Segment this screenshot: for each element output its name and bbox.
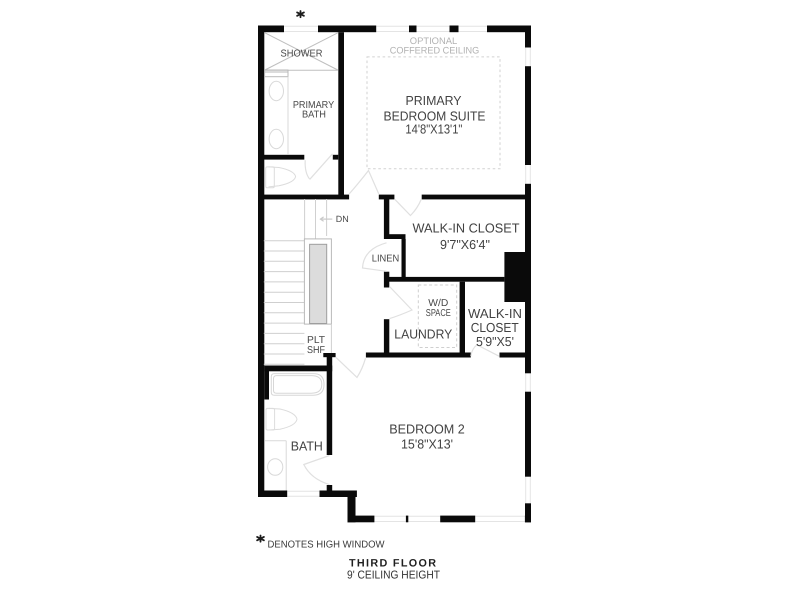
svg-text:9' CEILING HEIGHT: 9' CEILING HEIGHT — [347, 570, 440, 582]
svg-text:SPACE: SPACE — [426, 308, 451, 319]
svg-text:9'7"X6'4": 9'7"X6'4" — [440, 237, 490, 252]
svg-text:5'9"X5': 5'9"X5' — [476, 334, 514, 349]
svg-text:PRIMARY: PRIMARY — [406, 93, 462, 108]
svg-text:WALK-IN CLOSET: WALK-IN CLOSET — [413, 221, 520, 236]
svg-text:DENOTES HIGH WINDOW: DENOTES HIGH WINDOW — [268, 539, 386, 550]
svg-text:WALK-IN: WALK-IN — [468, 306, 522, 321]
svg-text:SHOWER: SHOWER — [281, 49, 323, 60]
svg-text:BATH: BATH — [302, 110, 326, 121]
svg-text:BATH: BATH — [291, 439, 323, 454]
svg-text:LAUNDRY: LAUNDRY — [394, 327, 452, 342]
svg-text:14'8"X13'1": 14'8"X13'1" — [405, 121, 462, 136]
svg-text:COFFERED CEILING: COFFERED CEILING — [390, 46, 480, 57]
svg-text:DN: DN — [336, 214, 349, 224]
svg-text:LINEN: LINEN — [372, 254, 400, 265]
svg-text:CLOSET: CLOSET — [471, 320, 519, 335]
svg-text:BEDROOM 2: BEDROOM 2 — [389, 422, 465, 437]
svg-text:15'8"X13': 15'8"X13' — [401, 437, 453, 452]
svg-text:THIRD FLOOR: THIRD FLOOR — [349, 558, 436, 570]
svg-text:SHF: SHF — [307, 345, 325, 356]
